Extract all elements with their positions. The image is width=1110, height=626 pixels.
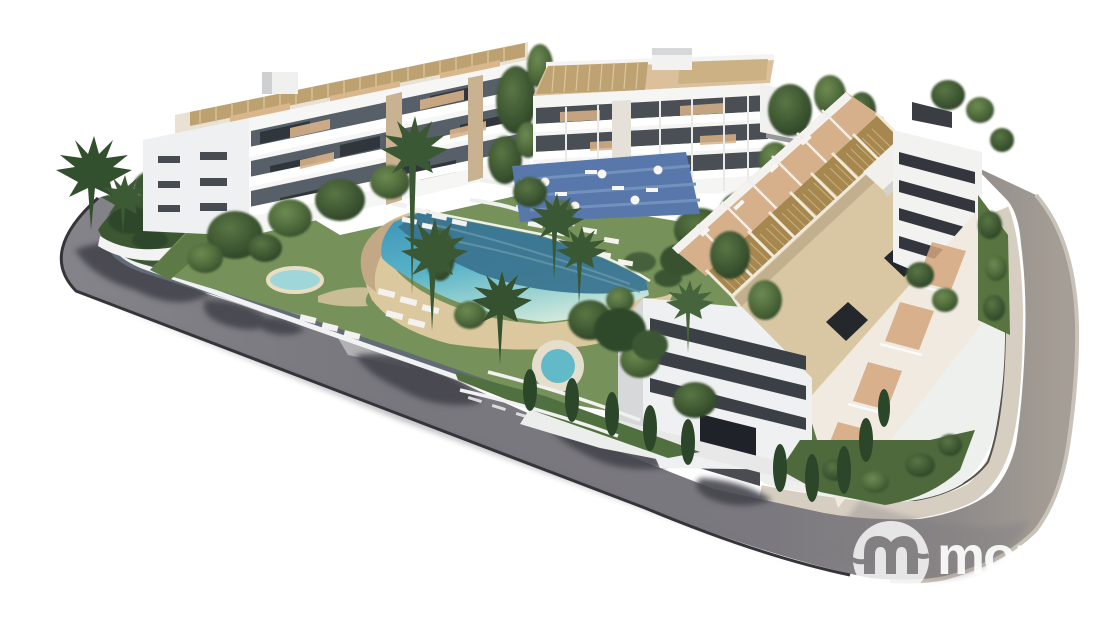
svg-text:mon: mon [937,526,1045,586]
